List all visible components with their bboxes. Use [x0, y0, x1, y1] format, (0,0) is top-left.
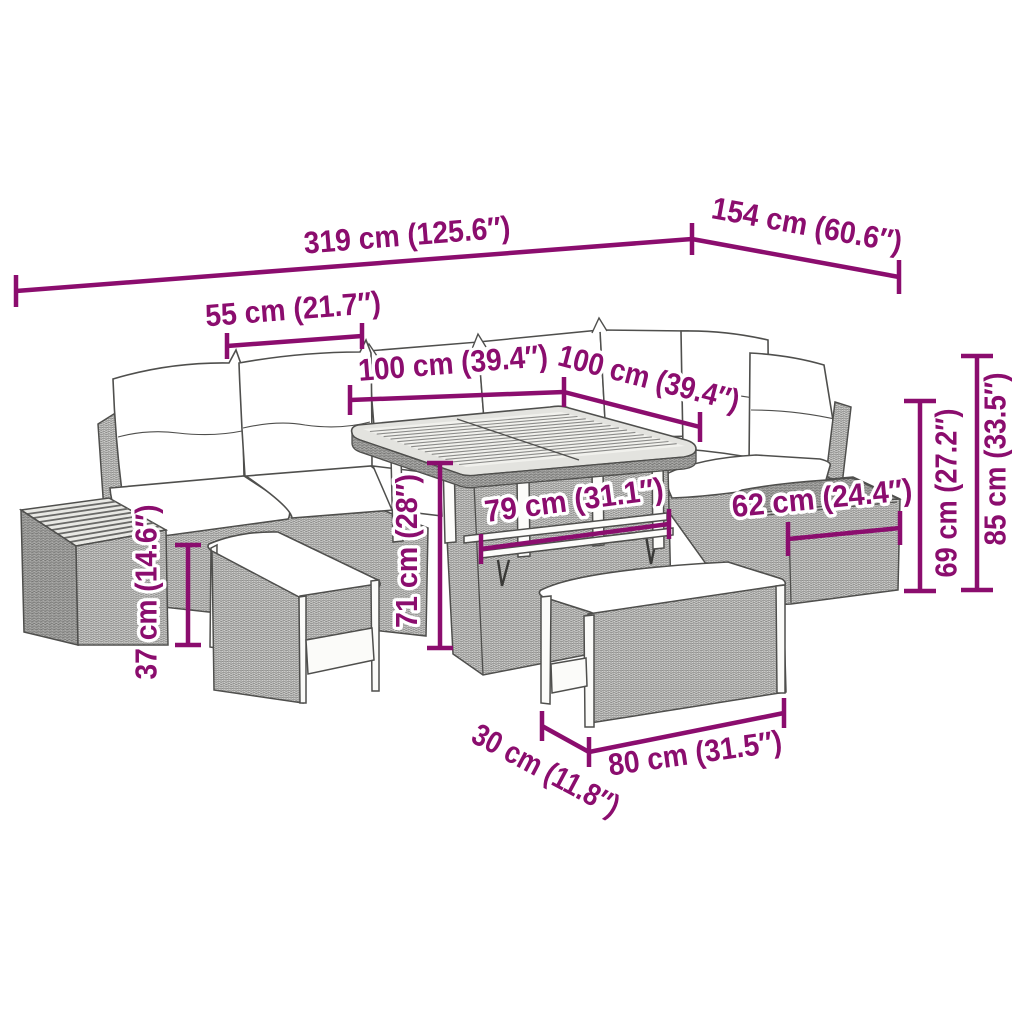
svg-text:71 cm (28″): 71 cm (28″): [389, 474, 424, 628]
svg-text:37 cm (14.6″): 37 cm (14.6″): [129, 505, 164, 680]
svg-text:85 cm (33.5″): 85 cm (33.5″): [978, 373, 1013, 546]
svg-text:69 cm (27.2″): 69 cm (27.2″): [929, 409, 964, 578]
